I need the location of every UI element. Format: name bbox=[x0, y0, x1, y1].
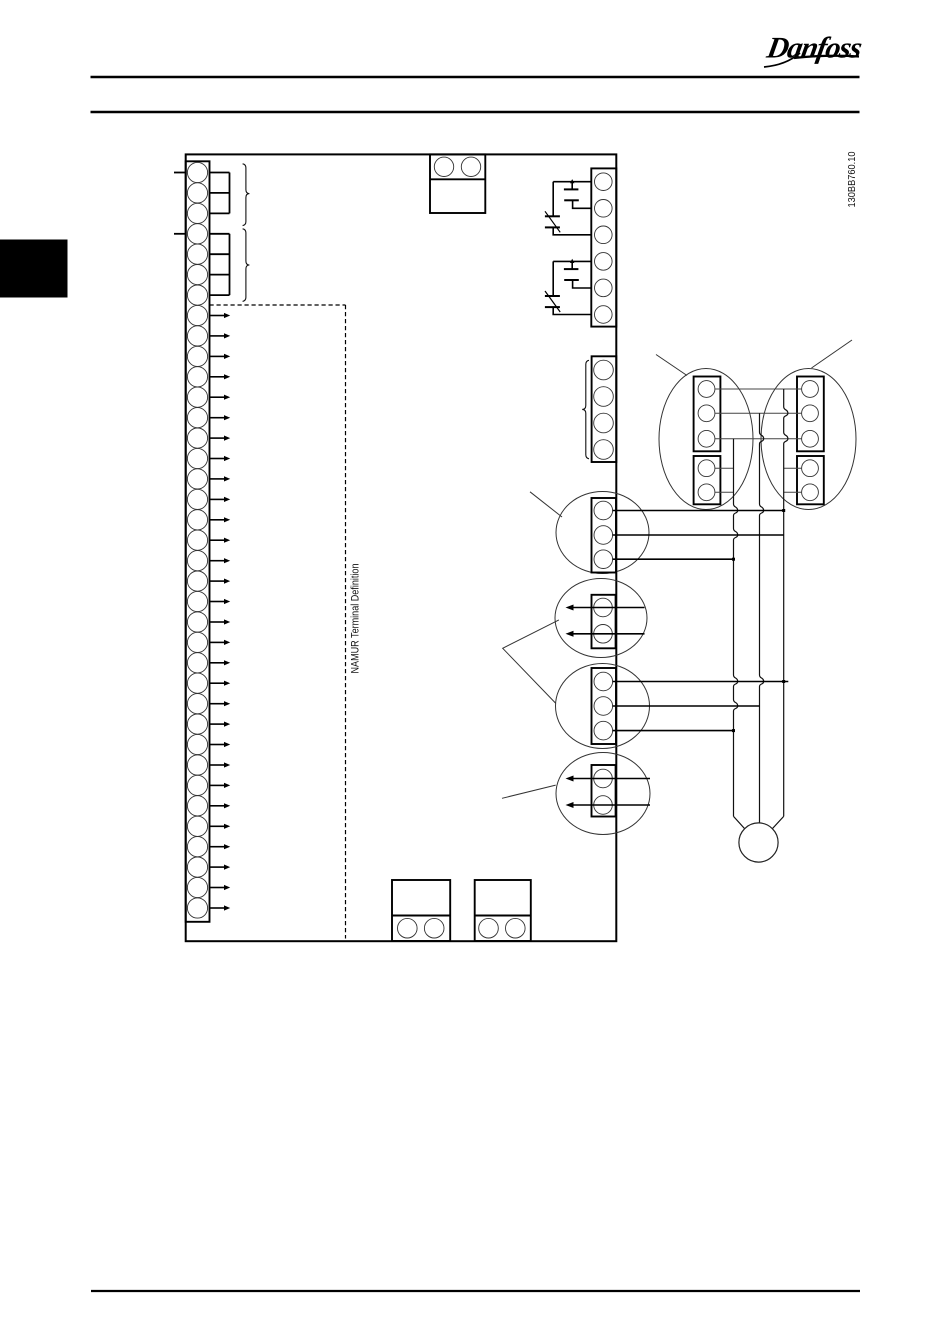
svg-text:Danfoss: Danfoss bbox=[763, 31, 864, 65]
svg-text:NAMUR Terminal Definition: NAMUR Terminal Definition bbox=[350, 564, 362, 674]
svg-text:130BB760.10: 130BB760.10 bbox=[847, 151, 858, 207]
